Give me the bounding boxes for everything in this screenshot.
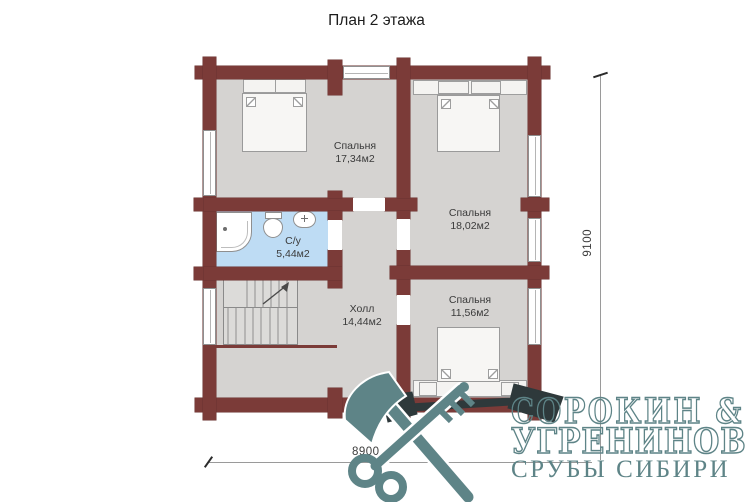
- window: [528, 218, 541, 262]
- wardrobe-box: [438, 81, 469, 94]
- door-opening: [353, 198, 385, 211]
- logo-text-line3: СРУБЫ СИБИРИ: [511, 457, 730, 482]
- room-label-bedroom-1: Спальня 17,34м2: [303, 140, 407, 165]
- wall-log-cross: [328, 60, 342, 95]
- pillow: [441, 99, 451, 109]
- stair-railing: [213, 345, 337, 348]
- pillow: [246, 97, 256, 107]
- sink-tap: [301, 218, 308, 219]
- sink-icon: [293, 211, 316, 228]
- wardrobe-divider: [275, 80, 276, 92]
- page-title: План 2 этажа: [0, 12, 753, 30]
- shower-drain: [223, 227, 227, 231]
- wall-log-cross: [194, 267, 203, 280]
- pillow: [489, 99, 499, 109]
- wall-log-cross: [328, 191, 342, 198]
- room-label-bedroom-2: Спальня 18,02м2: [423, 207, 517, 232]
- window: [528, 135, 541, 197]
- floor-plan-page: План 2 этажа: [0, 0, 753, 502]
- staircase: [223, 278, 298, 345]
- logo-text-line2: УГРЕНИНОВ: [511, 424, 747, 459]
- window: [203, 288, 216, 345]
- wall-bathroom-bottom: [203, 267, 342, 280]
- wall-divider: [397, 58, 410, 198]
- wardrobe: [243, 79, 306, 93]
- dimension-label-height: 9100: [582, 229, 594, 257]
- wall-bathroom-top: [203, 198, 353, 211]
- room-label-bathroom: С/у 5,44м2: [258, 235, 328, 260]
- room-label-bedroom-3: Спальня 11,56м2: [423, 294, 517, 319]
- wall-left: [203, 57, 216, 420]
- wall-bathroom-right: [328, 211, 342, 220]
- shower-tray-line: [221, 221, 248, 248]
- wardrobe: [413, 80, 527, 95]
- wall-log-cross: [194, 198, 203, 211]
- wall-bathroom-top: [385, 198, 417, 211]
- wall-log-cross: [521, 198, 549, 211]
- window: [528, 288, 541, 345]
- door-opening: [397, 219, 410, 250]
- wall-bedrooms-divider: [390, 266, 549, 279]
- door-opening: [328, 220, 342, 250]
- wardrobe-box: [471, 81, 501, 94]
- wall-divider: [397, 211, 410, 219]
- pillow: [293, 97, 303, 107]
- window: [203, 130, 216, 196]
- window: [343, 66, 390, 79]
- room-label-hall: Холл 14,44м2: [315, 303, 409, 328]
